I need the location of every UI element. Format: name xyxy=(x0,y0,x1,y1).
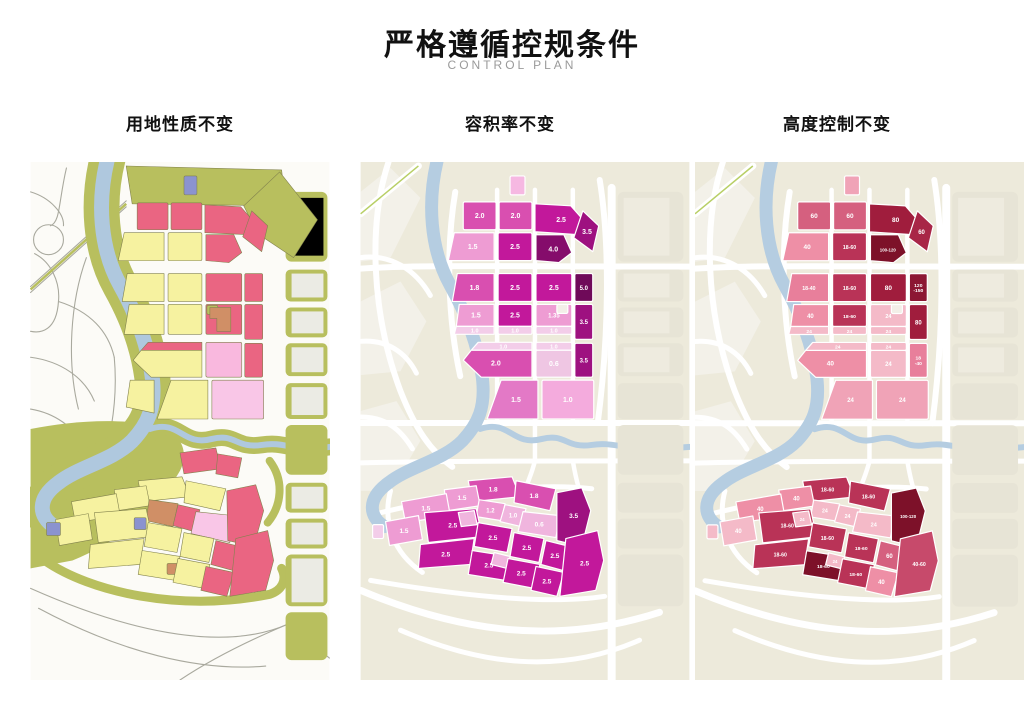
parcel-label: 24 xyxy=(886,329,892,335)
parcel-label: 18-60 xyxy=(843,314,856,320)
parcel-label: 2.5 xyxy=(580,561,589,568)
parcel-label: 24 xyxy=(885,362,892,368)
parcel-label: 1.0 xyxy=(509,514,518,520)
parcel-label: 18-60 xyxy=(855,546,868,552)
parcel-label: 2.0 xyxy=(475,213,485,220)
parcel xyxy=(118,233,164,261)
parcel-label: 60 xyxy=(811,213,819,220)
parcel-label: 40-60 xyxy=(913,562,926,568)
parcel-label: 0.6 xyxy=(549,361,559,368)
parcel-label: 24 xyxy=(885,314,892,320)
far-map: 2.02.02.53.51.52.54.01.82.52.55.01.51.02… xyxy=(360,162,690,680)
parcel-label: 24 xyxy=(845,514,851,520)
parcel-label: 1.5 xyxy=(471,313,481,320)
parcel-label: 60 xyxy=(918,230,925,236)
parcel xyxy=(373,525,384,539)
parcel-label: 5.0 xyxy=(580,286,589,292)
parcel xyxy=(137,203,168,230)
parcel-label: 1.35 xyxy=(548,314,560,320)
parcel xyxy=(122,274,164,302)
parcel-label: 40 xyxy=(735,529,742,535)
parcel-label: 2.5 xyxy=(510,244,520,251)
slide: 严格遵循控规条件 CONTROL PLAN 用地性质不变 容积率不变 高度控制不… xyxy=(0,0,1024,724)
parcel xyxy=(245,343,263,377)
parcel xyxy=(212,380,264,419)
parcel-label: 1.5 xyxy=(399,528,408,535)
parcel-label: 2.0 xyxy=(491,360,501,367)
parcel xyxy=(510,176,525,195)
parcel-label: 2.5 xyxy=(549,285,559,292)
heading-far: 容积率不变 xyxy=(345,110,675,135)
parcel-label: 2.5 xyxy=(488,535,497,542)
parcel-label: 80 xyxy=(892,217,900,224)
parcel-label: 1.0 xyxy=(471,329,479,335)
parcel xyxy=(168,233,202,261)
parcel-label: 24 xyxy=(847,329,853,335)
parcel xyxy=(707,525,718,539)
parcel-label: 120-150 xyxy=(913,283,923,294)
parcel-label: 80 xyxy=(915,320,922,326)
east-parcels xyxy=(952,192,1018,607)
parcel-label: 1.5 xyxy=(457,495,466,502)
parcel-label: 24 xyxy=(806,329,812,335)
parcel-label: 2.5 xyxy=(542,579,551,586)
parcel-label: 24 xyxy=(822,509,828,515)
parcel-label: 2.5 xyxy=(441,551,450,558)
height-map: 606080604018-60100-12018-4018-6080120-15… xyxy=(695,162,1024,680)
parcel-label: 1.8 xyxy=(489,486,498,493)
east-parcels xyxy=(618,192,684,606)
parcel xyxy=(891,305,902,314)
parcel xyxy=(557,304,568,313)
parcel-label: 1.0 xyxy=(563,397,573,404)
parcel-label: 60 xyxy=(846,213,854,220)
parcel-label: 18-60 xyxy=(774,553,787,559)
parcel-label: 1.2 xyxy=(486,508,495,514)
parcel-label: 0.6 xyxy=(535,521,544,528)
parcel xyxy=(55,514,92,546)
parcel-label: 3.5 xyxy=(582,229,592,236)
parcel-label: 40 xyxy=(827,360,835,367)
parcel xyxy=(168,304,202,334)
parcel-label: 2.5 xyxy=(448,522,457,529)
parcel-label: 60 xyxy=(886,554,893,560)
parcel-label: 18-60 xyxy=(821,488,834,494)
parcel xyxy=(184,176,197,195)
parcel xyxy=(206,342,242,377)
parcel-label: 3.5 xyxy=(569,513,578,520)
parcel xyxy=(206,274,242,302)
page-subtitle: CONTROL PLAN xyxy=(0,58,1024,72)
parcel xyxy=(47,523,61,536)
parcel-label: 40 xyxy=(804,244,812,251)
parcel-label: 1.5 xyxy=(421,506,430,513)
parcel-label: 18-60 xyxy=(843,286,856,292)
parcel-label: 40 xyxy=(793,497,800,503)
parcel xyxy=(124,304,164,334)
parcel-label: 18-60 xyxy=(843,245,856,251)
parcel-label: 3.5 xyxy=(580,359,589,365)
panel-height: 606080604018-60100-12018-4018-6080120-15… xyxy=(695,162,1024,680)
parcel-label: 18-60 xyxy=(821,536,834,542)
parcel-label: 18-60 xyxy=(781,524,794,530)
parcel xyxy=(126,380,154,413)
parcel-label: 24 xyxy=(847,398,854,404)
parcel-label: 4.0 xyxy=(548,246,558,253)
parcel xyxy=(180,448,221,474)
parcel-label: 1.5 xyxy=(468,244,478,251)
parcel-label: 100-120 xyxy=(880,247,897,252)
parcel-label: 18-40 xyxy=(915,356,922,367)
parcel-label: 1.0 xyxy=(550,329,558,335)
parcel xyxy=(141,342,202,350)
heading-landuse: 用地性质不变 xyxy=(30,110,330,135)
heading-height: 高度控制不变 xyxy=(672,110,1002,135)
parcel-label: 18-60 xyxy=(862,494,875,500)
parcel-label: 2.5 xyxy=(556,217,566,224)
panel-far: 2.02.02.53.51.52.54.01.82.52.55.01.51.02… xyxy=(360,162,690,680)
parcel-label: 24 xyxy=(800,517,805,522)
parcel-label: 2.5 xyxy=(510,285,520,292)
parcel xyxy=(245,274,263,302)
panel-landuse xyxy=(30,162,330,680)
parcel-label: 1.5 xyxy=(511,397,521,404)
parcel-label: 18-40 xyxy=(802,286,815,292)
parcel-label: 100-120 xyxy=(900,514,917,519)
parcel-label: 2.5 xyxy=(510,313,520,320)
parcel-label: 40 xyxy=(807,314,814,320)
parcel-label: 1.8 xyxy=(470,285,480,292)
parcel xyxy=(458,511,477,527)
parcel-label: 3.5 xyxy=(580,320,589,326)
parcel xyxy=(245,304,263,339)
parcel xyxy=(134,518,146,530)
parcel-label: 24 xyxy=(833,559,838,564)
parcel xyxy=(216,454,242,478)
parcel-label: 2.5 xyxy=(550,553,559,560)
parcel-label: 18-60 xyxy=(849,572,862,578)
parcel-label: 80 xyxy=(885,285,893,292)
parcel-label: 40 xyxy=(878,580,885,586)
parcel-label: 24 xyxy=(899,398,906,404)
parcel xyxy=(168,274,202,302)
parcel-label: 1.0 xyxy=(511,329,519,335)
parcel-label: 2.5 xyxy=(522,545,531,552)
landuse-map xyxy=(30,162,330,680)
parcel xyxy=(171,203,202,230)
parcel-label: 2.0 xyxy=(511,213,521,220)
parcel xyxy=(845,176,860,195)
parcel-label: 2.5 xyxy=(517,571,526,578)
parcel-label: 24 xyxy=(871,523,878,529)
parcel-label: 1.8 xyxy=(529,493,538,500)
